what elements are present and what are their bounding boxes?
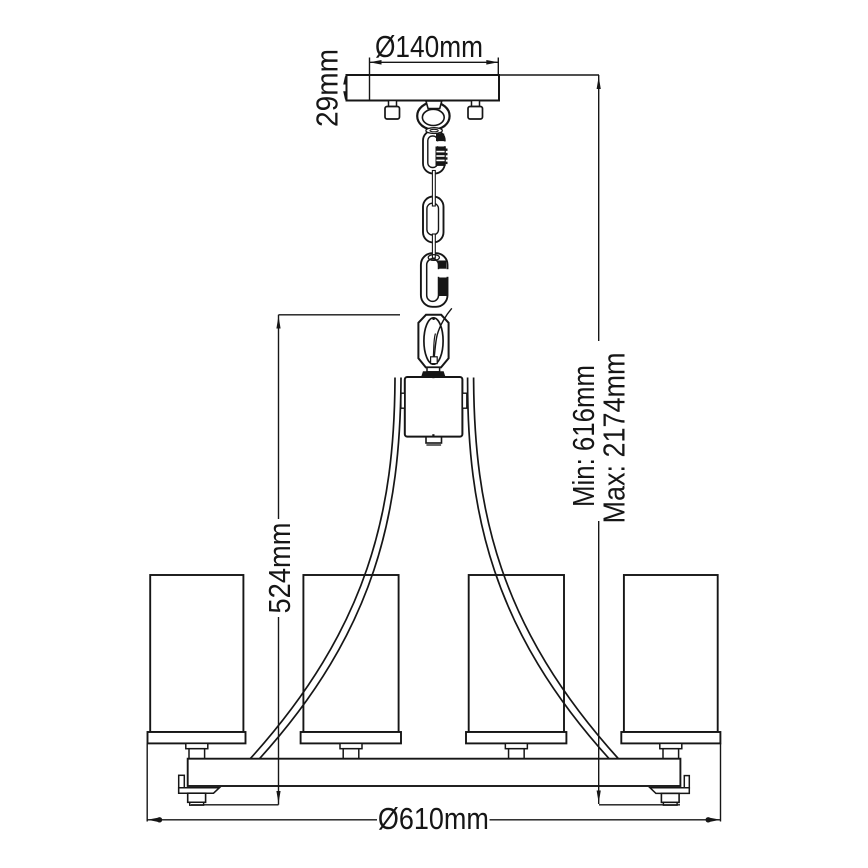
svg-text:Ø610mm: Ø610mm [378, 801, 489, 836]
svg-text:Ø140mm: Ø140mm [375, 29, 483, 64]
svg-text:Max: 2174mm: Max: 2174mm [597, 353, 632, 524]
svg-text:29mm: 29mm [310, 49, 345, 127]
svg-text:524mm: 524mm [262, 523, 297, 614]
